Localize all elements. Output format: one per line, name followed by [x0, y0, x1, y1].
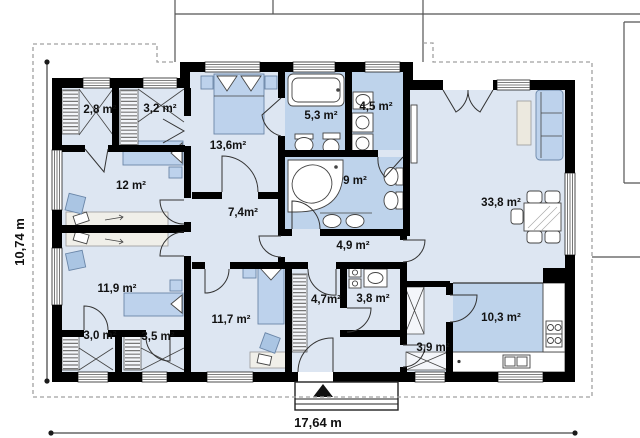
nightstand [201, 76, 213, 89]
nightstand [265, 76, 277, 89]
bidet [384, 192, 403, 210]
label-closet-bottom-left: 3,0 m² [83, 330, 116, 342]
nightstand [169, 167, 182, 178]
sink [295, 134, 313, 153]
top-terrace [175, 0, 640, 62]
window [415, 372, 445, 382]
shelf [411, 105, 417, 163]
dining-chair [511, 209, 523, 224]
label-bedroom-double: 13,6m² [210, 140, 247, 152]
chair [66, 250, 86, 270]
label-living-room: 33,8 m² [481, 197, 521, 209]
window [497, 80, 530, 90]
floor-plan-svg: 10,74 m 17,64 m 2,8 m² 3,2 m² 13,6m² 5,3… [0, 0, 640, 438]
label-utility: 4,5 m² [359, 101, 392, 113]
label-closet-top-right: 3,2 m² [143, 103, 176, 115]
dining-chair [527, 191, 542, 203]
window [365, 62, 400, 72]
label-pantry: 3,9 m² [416, 342, 449, 354]
dining-chair [545, 191, 560, 203]
window [52, 248, 62, 305]
window [565, 173, 575, 255]
window [205, 62, 260, 72]
nightstand [170, 280, 182, 291]
entrance-door-opening [298, 372, 333, 382]
bathtub [288, 74, 344, 106]
dining-chair [545, 231, 560, 243]
width-dimension-label: 17,64 m [294, 415, 342, 430]
height-dimension-label: 10,74 m [12, 218, 27, 266]
dining-chair [527, 231, 542, 243]
window [52, 150, 62, 210]
label-entry-hall: 4,7m² [311, 294, 341, 306]
entrance-porch [295, 382, 398, 410]
chair [65, 193, 86, 214]
label-kitchen: 10,3 m² [481, 312, 521, 324]
terrace-door-opening [443, 80, 493, 90]
label-bathroom-small: 5,3 m² [304, 110, 337, 122]
label-bathroom-main: 9 m² [343, 175, 367, 187]
window [83, 78, 110, 88]
label-wc: 3,8 m² [356, 293, 389, 305]
toilet [384, 168, 403, 186]
label-closet-top-left: 2,8 m² [83, 104, 116, 116]
dimension-width: 17,64 m [48, 415, 577, 436]
label-bedroom-bottom-middle: 11,7 m² [212, 314, 251, 326]
label-corridor: 4,9 m² [336, 240, 369, 252]
label-bedroom-bottom-left: 11,9 m² [98, 283, 137, 295]
window [207, 372, 253, 382]
label-hall: 7,4m² [228, 207, 258, 219]
window [78, 372, 108, 382]
sofa [536, 90, 563, 160]
window [293, 62, 335, 72]
label-closet-bottom-right: 3,5 m² [141, 331, 174, 343]
tv-bench [517, 101, 531, 145]
dimension-height: 10,74 m [12, 59, 50, 383]
window [498, 372, 543, 382]
floor-plan-image: 10,74 m 17,64 m 2,8 m² 3,2 m² 13,6m² 5,3… [0, 0, 640, 438]
label-bedroom-left: 12 m² [116, 180, 146, 192]
right-terrace [592, 22, 640, 257]
window [143, 78, 177, 88]
window [142, 372, 167, 382]
